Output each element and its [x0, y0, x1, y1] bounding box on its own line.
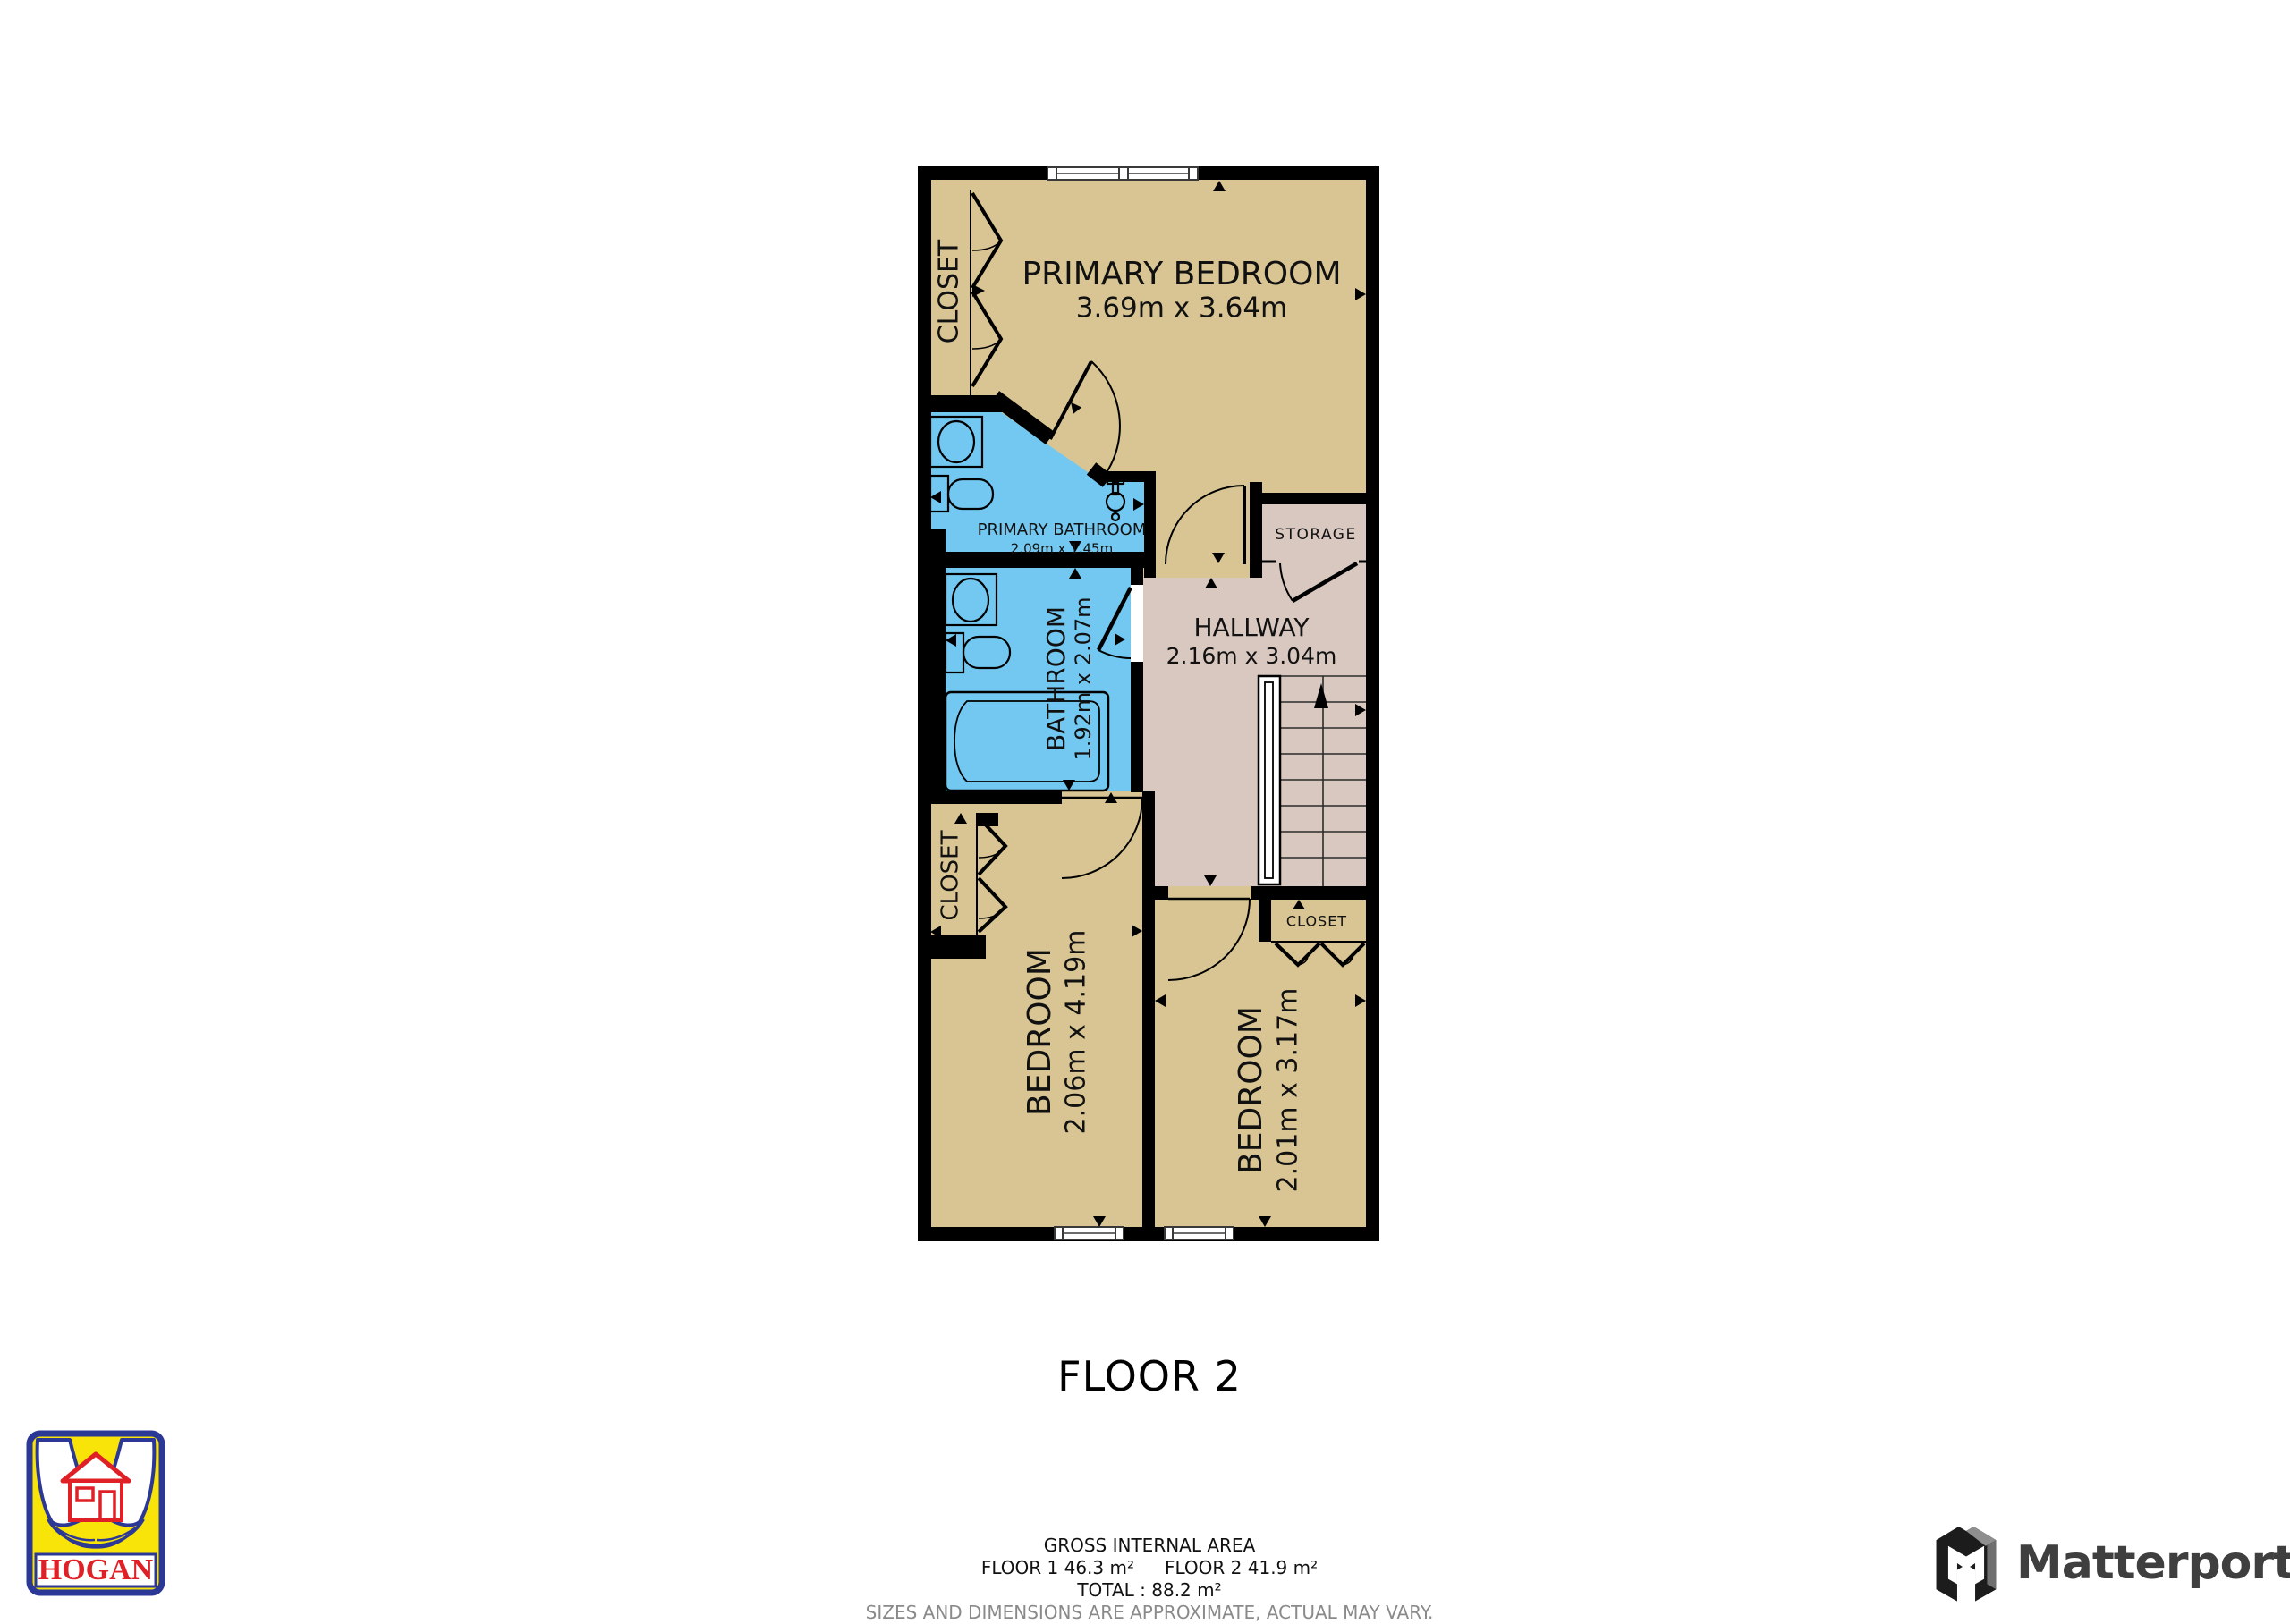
- window-bottom-left: [1055, 1227, 1124, 1239]
- gross-internal-area-heading: GROSS INTERNAL AREA: [792, 1535, 1507, 1557]
- bathroom-floor: [946, 568, 1131, 791]
- primary-bedroom-label: PRIMARY BEDROOM: [1022, 256, 1341, 292]
- diagonal-wall-lower: [1091, 469, 1107, 481]
- bedroom-right-label: BEDROOM: [1233, 1006, 1269, 1174]
- matterport-logo: Matterport: [1929, 1518, 2290, 1608]
- matterport-wordmark: Matterport: [2016, 1536, 2290, 1590]
- primary-bathroom-dims: 2.09m x 1.45m: [1011, 541, 1113, 557]
- bedroom-left-label: BEDROOM: [1022, 948, 1058, 1116]
- hallway-label: HALLWAY: [1193, 613, 1310, 642]
- bathroom-dims: 1.92m x 2.07m: [1071, 596, 1096, 760]
- primary-bathroom-label: PRIMARY BATHROOM: [978, 520, 1147, 539]
- stair-railing: [1259, 676, 1280, 884]
- closet-right-label: CLOSET: [1286, 913, 1347, 930]
- storage-label: STORAGE: [1275, 526, 1356, 544]
- bedroom-right-dims: 2.01m x 3.17m: [1273, 988, 1304, 1193]
- total-area: TOTAL : 88.2 m²: [792, 1579, 1507, 1602]
- bathroom-doorway: [1131, 585, 1143, 662]
- bedroom-left-dims: 2.06m x 4.19m: [1061, 930, 1092, 1135]
- window-bottom-right: [1165, 1227, 1234, 1239]
- disclaimer: SIZES AND DIMENSIONS ARE APPROXIMATE, AC…: [792, 1602, 1507, 1624]
- area-summary: GROSS INTERNAL AREA FLOOR 1 46.3 m²FLOOR…: [792, 1535, 1507, 1624]
- matterport-m-icon: [1929, 1522, 2004, 1604]
- primary-bedroom-dims: 3.69m x 3.64m: [1076, 292, 1288, 325]
- floor1-area: FLOOR 1 46.3 m²: [981, 1557, 1134, 1578]
- closet-primary-label: CLOSET: [934, 239, 965, 343]
- hallway-dims: 2.16m x 3.04m: [1166, 643, 1337, 669]
- floor-plan: PRIMARY BEDROOM 3.69m x 3.64m CLOSET PRI…: [916, 165, 1381, 1243]
- floor-areas-line: FLOOR 1 46.3 m²FLOOR 2 41.9 m²: [792, 1557, 1507, 1579]
- closet-left-label: CLOSET: [937, 830, 964, 920]
- hogan-logo: HOGAN: [25, 1429, 166, 1608]
- floor2-area: FLOOR 2 41.9 m²: [1165, 1557, 1318, 1578]
- bathroom-label: BATHROOM: [1041, 606, 1071, 751]
- hogan-wordmark: HOGAN: [38, 1553, 154, 1586]
- floor-title: FLOOR 2: [917, 1352, 1382, 1400]
- window-top: [1047, 167, 1198, 180]
